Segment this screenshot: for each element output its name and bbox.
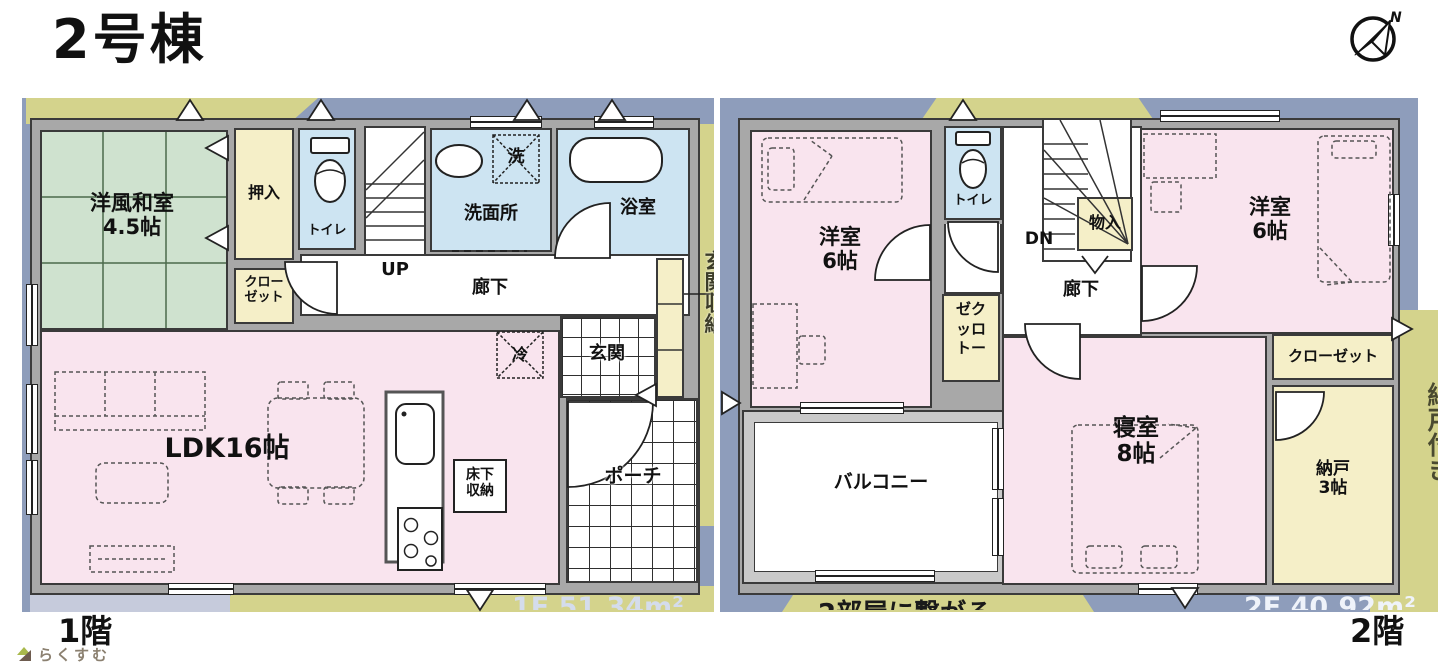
- yoshitsu-left-label: 洋室 6帖: [790, 226, 890, 273]
- genkan-storage-callout: 玄関収納: [699, 250, 714, 362]
- toilet-icon-2f: [956, 132, 990, 188]
- floor2-label: 2階: [1350, 614, 1404, 650]
- sink-icon: [436, 145, 482, 177]
- floor2-note-partial: 2部屋に繋がる: [818, 593, 1033, 610]
- compass-n-label: N: [1390, 10, 1402, 26]
- closet-1f-label: クロー ゼット: [234, 276, 294, 305]
- balcony-label: バルコニー: [806, 472, 956, 493]
- ldk-label: LDK16帖: [134, 434, 320, 464]
- floor1-plan: 洋風和室 4.5帖 押入 クロー ゼット トイレ UP 洗面所 洗 浴室 廊下 …: [22, 98, 714, 612]
- genkan-label: 玄関: [562, 344, 652, 364]
- ldk-furniture: [55, 372, 364, 572]
- yoshitsu-right-label: 洋室 6帖: [1220, 196, 1320, 243]
- hall-1f-label: 廊下: [450, 278, 530, 298]
- floor2-area-partial: 2F 40.92m²: [1244, 592, 1434, 610]
- toilet-icon-1f: [311, 138, 349, 202]
- up-label: UP: [364, 260, 426, 280]
- washitsu-label: 洋風和室 4.5帖: [62, 192, 202, 239]
- dn-label: DN: [1014, 230, 1064, 249]
- hall-2f-label: 廊下: [1048, 280, 1114, 300]
- shinshitsu-label: 寝室 8帖: [1078, 416, 1194, 468]
- closet-vertical-label: ゼク ッロ トー: [948, 300, 994, 359]
- logo-house-icon: [16, 646, 33, 663]
- door-arcs-2f: [875, 222, 1324, 440]
- floorplan-page: { "header": { "title": "2号棟", "compass_n…: [0, 0, 1438, 669]
- compass-north-icon: N: [1346, 8, 1404, 66]
- oshiire-label: 押入: [234, 184, 294, 202]
- yukashita-label: 床下 収納: [456, 468, 504, 499]
- closet-2f-label: クローゼット: [1272, 348, 1394, 365]
- washer-label: 洗: [500, 148, 532, 167]
- bathtub-icon: [570, 138, 662, 182]
- toilet-1f-label: トイレ: [298, 224, 356, 239]
- bath-label: 浴室: [606, 198, 670, 218]
- porch-label: ポーチ: [578, 466, 688, 487]
- monoire-label: 物入: [1077, 214, 1133, 232]
- toilet-2f-label: トイレ: [944, 194, 1002, 209]
- fridge-label: 冷: [510, 346, 530, 364]
- nando-label: 納戸 3帖: [1300, 460, 1366, 498]
- kitchen-icons: [386, 392, 443, 570]
- page-title: 2号棟: [52, 10, 207, 70]
- floor2-plan: 洋室 6帖 トイレ DN 物入 廊下 ゼク ッロ トー 洋室 6帖 クローゼット…: [720, 98, 1438, 612]
- floor1-area-partial: 1F 51.34m²: [512, 592, 722, 610]
- senmenjo-label: 洗面所: [430, 204, 552, 224]
- nando-tsuki-callout: 納戸付き: [1420, 382, 1438, 522]
- logo: らくすむ: [16, 644, 110, 664]
- logo-text: らくすむ: [38, 644, 110, 665]
